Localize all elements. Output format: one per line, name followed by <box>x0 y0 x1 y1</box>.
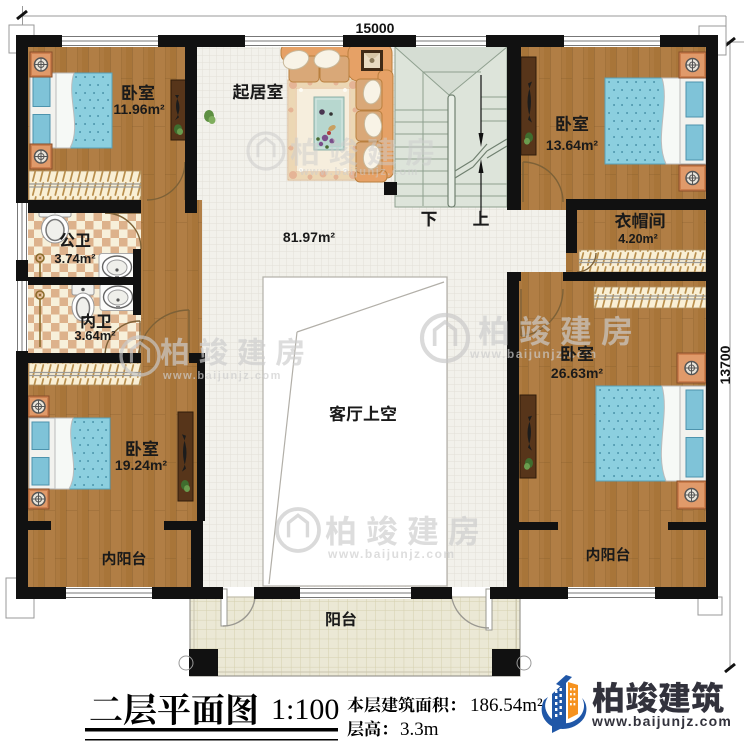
svg-text:11.96m²: 11.96m² <box>113 101 165 117</box>
svg-text:81.97m²: 81.97m² <box>283 229 335 245</box>
svg-text:26.63m²: 26.63m² <box>551 365 603 381</box>
svg-text:4.20m²: 4.20m² <box>618 232 658 246</box>
svg-text:186.54m²: 186.54m² <box>470 695 543 716</box>
svg-text:19.24m²: 19.24m² <box>115 457 167 473</box>
svg-text:3.3m: 3.3m <box>400 719 439 740</box>
svg-text:3.64m²: 3.64m² <box>74 328 116 343</box>
svg-text:www.baijunjz.com: www.baijunjz.com <box>299 166 419 178</box>
svg-text:15000: 15000 <box>356 20 395 36</box>
svg-text:www.baijunjz.com: www.baijunjz.com <box>591 713 732 729</box>
svg-text:3.74m²: 3.74m² <box>54 251 96 266</box>
svg-text:13.64m²: 13.64m² <box>546 137 598 153</box>
svg-text:1:100: 1:100 <box>271 693 339 726</box>
svg-text:www.baijunjz.com: www.baijunjz.com <box>162 370 282 382</box>
svg-text:www.baijunjz.com: www.baijunjz.com <box>327 547 456 561</box>
svg-text:13700: 13700 <box>717 345 733 384</box>
